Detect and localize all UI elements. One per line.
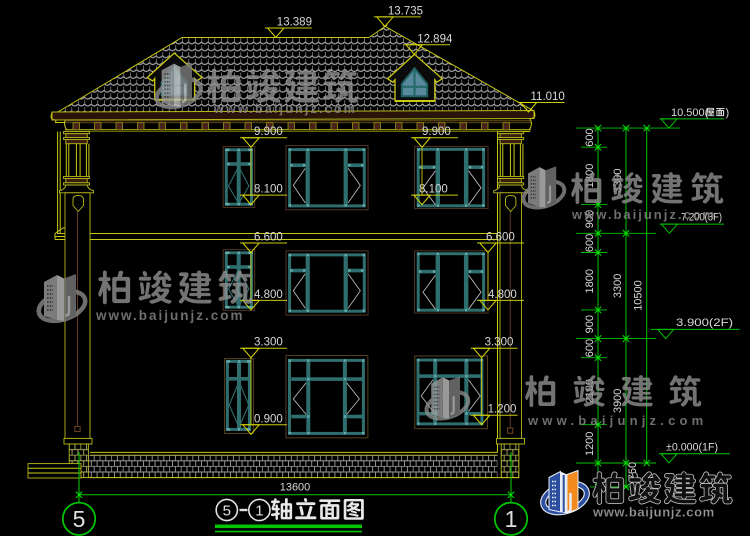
svg-text:www.baijunjz.com: www.baijunjz.com <box>213 102 357 116</box>
svg-text:5: 5 <box>73 506 86 532</box>
svg-text:): ) <box>726 107 730 119</box>
svg-text:600: 600 <box>584 128 596 146</box>
svg-text:www.baijunjz.com: www.baijunjz.com <box>592 505 715 520</box>
svg-text:10.500(: 10.500( <box>671 107 709 119</box>
svg-text:5: 5 <box>223 503 231 520</box>
svg-text:±0.000(1F): ±0.000(1F) <box>666 442 718 454</box>
svg-text:900: 900 <box>584 315 596 333</box>
svg-text:0.900: 0.900 <box>254 413 283 425</box>
svg-text:6.600: 6.600 <box>486 232 515 244</box>
svg-text:3300: 3300 <box>612 274 624 298</box>
svg-text:3.900(2F): 3.900(2F) <box>676 317 733 329</box>
svg-text:www.baijunjz.com: www.baijunjz.com <box>527 413 707 428</box>
svg-text:1.200: 1.200 <box>488 404 517 416</box>
svg-text:12.894: 12.894 <box>417 33 453 45</box>
svg-text:6.600: 6.600 <box>254 232 283 244</box>
svg-text:www.baijunjz.com: www.baijunjz.com <box>95 308 245 323</box>
svg-text:1200: 1200 <box>584 432 596 456</box>
svg-text:13600: 13600 <box>280 482 311 494</box>
svg-text:1: 1 <box>255 503 263 520</box>
svg-text:4.800: 4.800 <box>254 289 283 301</box>
svg-text:1: 1 <box>505 506 518 532</box>
svg-text:11.010: 11.010 <box>531 91 565 103</box>
svg-text:8.100: 8.100 <box>254 184 283 196</box>
svg-text:www.baijunjz.com: www.baijunjz.com <box>571 207 716 222</box>
svg-text:8.100: 8.100 <box>419 184 448 196</box>
svg-text:13.735: 13.735 <box>388 5 423 17</box>
svg-text:10500: 10500 <box>633 280 645 311</box>
svg-text:13.389: 13.389 <box>277 17 312 29</box>
svg-text:9.900: 9.900 <box>422 126 451 138</box>
svg-text:9.900: 9.900 <box>254 126 283 138</box>
svg-text:3900: 3900 <box>612 389 624 413</box>
svg-text:1800: 1800 <box>584 269 596 293</box>
svg-text:4.800: 4.800 <box>488 289 517 301</box>
svg-text:600: 600 <box>584 339 596 357</box>
svg-text:3.300: 3.300 <box>254 337 283 349</box>
svg-text:600: 600 <box>584 234 596 252</box>
svg-text:3.300: 3.300 <box>485 337 514 349</box>
